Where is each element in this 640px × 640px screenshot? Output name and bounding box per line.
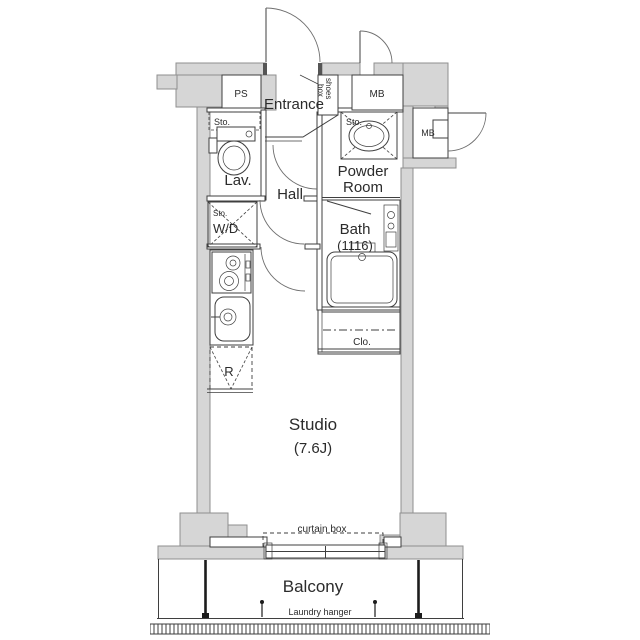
meter-box-top-door <box>360 31 392 63</box>
hall-door <box>273 145 317 189</box>
hall-south-door <box>260 200 304 244</box>
label-refrigerator: R <box>224 364 233 379</box>
label-balcony: Balcony <box>283 577 344 596</box>
label-lav-storage: Sto. <box>214 117 230 127</box>
label-powder-line2: Room <box>343 179 383 196</box>
label-lav: Lav. <box>224 172 251 189</box>
kitchen-icon <box>210 250 253 345</box>
studio-window <box>263 533 387 559</box>
label-shoes-box-line2: box <box>316 84 325 97</box>
entrance-detail-line <box>300 75 318 84</box>
studio-door <box>261 247 305 291</box>
entrance-step <box>265 115 338 141</box>
label-mb-side: MB <box>421 128 435 138</box>
label-curtain-box: curtain box <box>298 524 347 535</box>
label-mb-top: MB <box>370 89 385 100</box>
balcony-structure <box>150 559 490 634</box>
label-ps: PS <box>234 89 248 100</box>
label-entrance: Entrance <box>264 96 324 113</box>
label-wd: W/D <box>213 221 238 236</box>
label-closet: Clo. <box>353 337 371 348</box>
meter-box-side-door <box>448 113 486 151</box>
label-powder-line1: Powder <box>338 163 389 180</box>
floor-plan-drawing: PS Entrance shoes box MB MB Sto. Lav. St… <box>0 0 640 640</box>
label-bath: Bath <box>340 221 371 238</box>
entrance-door <box>266 8 320 62</box>
floor-plan: PS Entrance shoes box MB MB Sto. Lav. St… <box>0 0 640 640</box>
label-wd-storage: Sto. <box>213 209 227 218</box>
label-bath-size: (1116) <box>337 238 373 253</box>
label-powder-storage: Sto. <box>346 117 362 127</box>
label-hall: Hall <box>277 186 303 203</box>
label-laundry-hanger: Laundry hanger <box>288 607 351 617</box>
label-studio-size: (7.6J) <box>294 440 332 457</box>
label-studio: Studio <box>289 415 337 434</box>
balcony-railing <box>150 624 490 634</box>
